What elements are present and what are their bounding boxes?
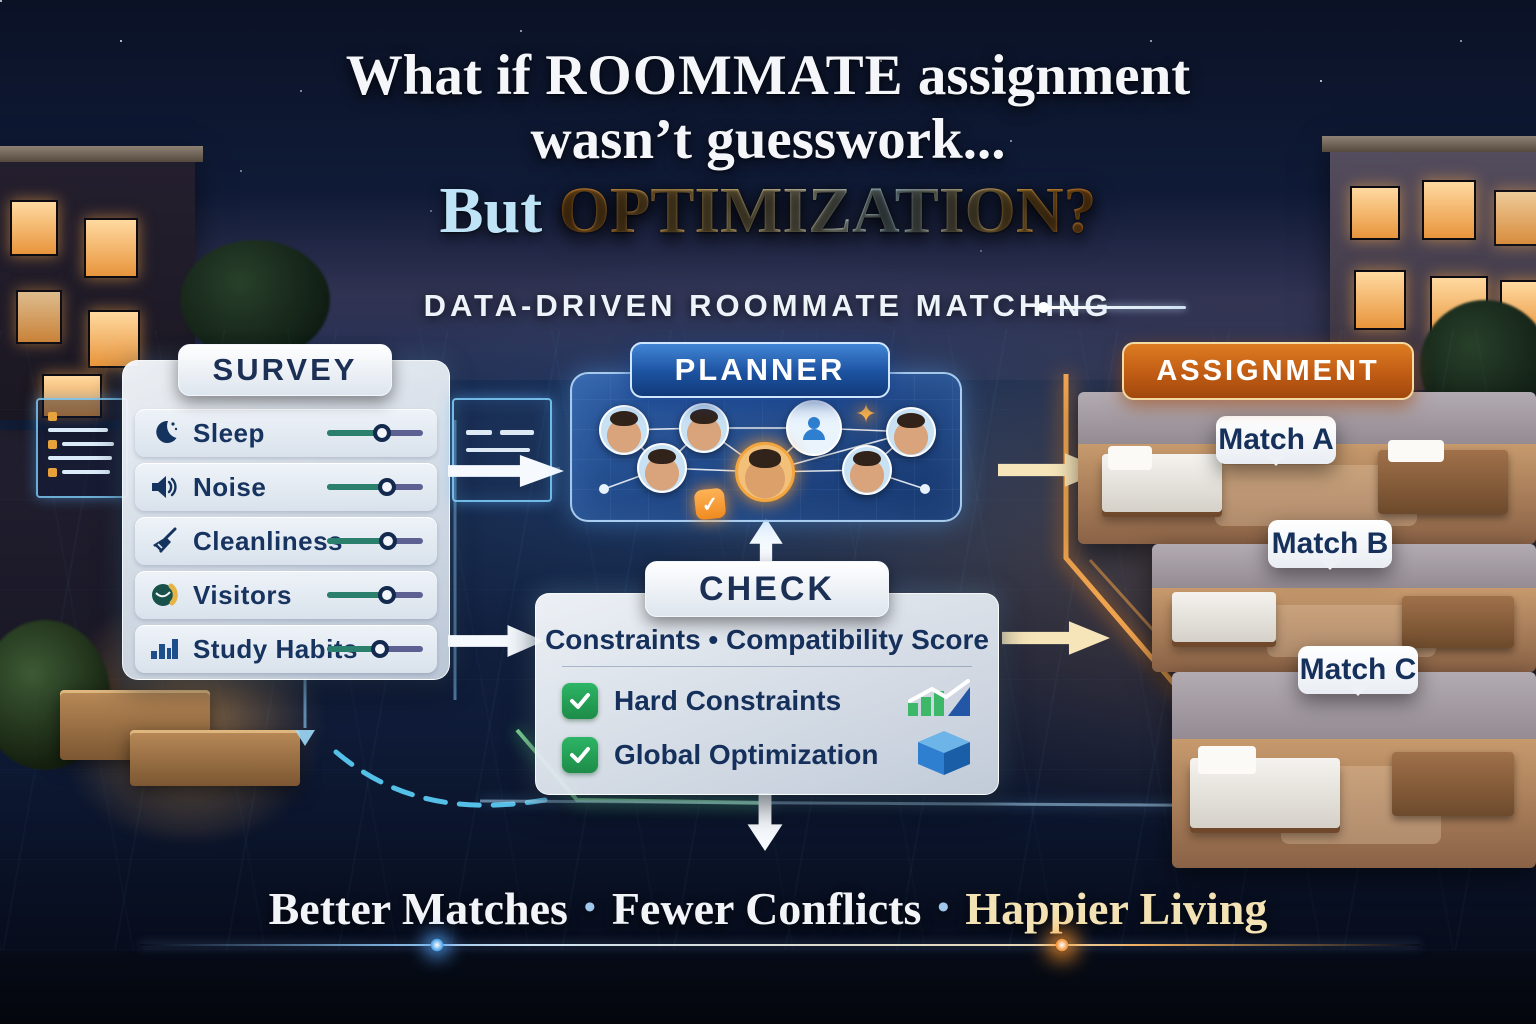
check-subheader: Constraints • Compatibility Score	[536, 624, 998, 656]
survey-item-label: Noise	[193, 472, 266, 503]
subtitle: DATA-DRIVEN ROOMMATE MATCHING	[0, 288, 1536, 324]
moon-icon	[147, 416, 181, 450]
survey-item-label: Visitors	[193, 580, 292, 611]
headline: What if ROOMMATE assignment wasn’t guess…	[0, 44, 1536, 250]
survey-header: SURVEY	[178, 344, 392, 396]
noise-slider[interactable]	[327, 484, 423, 490]
footer-divider-line	[140, 944, 1420, 946]
match-b-label[interactable]: Match B	[1268, 520, 1392, 568]
holo-checklist-panel	[36, 398, 128, 498]
tagline-better-matches: Better Matches	[269, 883, 568, 934]
check-header: CHECK	[645, 561, 889, 617]
slider-knob[interactable]	[371, 640, 389, 658]
tagline-separator: •	[921, 889, 965, 926]
wireframe-card	[452, 398, 552, 502]
broom-icon	[147, 524, 181, 558]
cleanliness-slider[interactable]	[327, 538, 423, 544]
roommate-avatar	[842, 445, 892, 495]
sparkle-icon: ✦	[855, 399, 877, 430]
slider-knob[interactable]	[373, 424, 391, 442]
glow-dot-orange	[1055, 938, 1069, 952]
roommate-avatar	[886, 407, 936, 457]
roommate-avatar	[637, 443, 687, 493]
check-item-label: Hard Constraints	[614, 685, 841, 717]
tagline-fewer-conflicts: Fewer Conflicts	[612, 883, 922, 934]
assignment-header: ASSIGNMENT	[1122, 342, 1414, 400]
survey-row-study-habits: Study Habits	[135, 625, 437, 673]
match-a-label[interactable]: Match A	[1216, 416, 1336, 464]
check-divider	[562, 666, 972, 667]
headline-line2: wasn’t guesswork...	[0, 108, 1536, 172]
star-field	[0, 0, 2, 2]
growth-chart-icon	[906, 679, 972, 724]
cube-icon	[916, 729, 972, 782]
survey-item-label: Sleep	[193, 418, 265, 449]
speaker-icon	[147, 470, 181, 504]
check-row-global-optimization: Global Optimization	[562, 732, 972, 778]
tagline-happier-living: Happier Living	[965, 883, 1267, 934]
check-row-hard-constraints: Hard Constraints	[562, 678, 972, 724]
glow-dot-blue	[430, 938, 444, 952]
study-habits-slider[interactable]	[327, 646, 423, 652]
match-c-label[interactable]: Match C	[1298, 646, 1418, 694]
planner-header: PLANNER	[630, 342, 890, 398]
visitors-icon	[147, 578, 181, 612]
survey-panel: Sleep Noise Clea	[122, 360, 450, 680]
check-panel: Constraints • Compatibility Score Hard C…	[535, 593, 999, 795]
subtitle-line-decoration	[1046, 306, 1186, 309]
person-placeholder-icon	[786, 400, 842, 456]
tagline: Better Matches•Fewer Conflicts•Happier L…	[0, 882, 1536, 935]
survey-row-cleanliness: Cleanliness	[135, 517, 437, 565]
bar-chart-icon	[147, 632, 181, 666]
survey-row-sleep: Sleep	[135, 409, 437, 457]
infographic-canvas: What if ROOMMATE assignment wasn’t guess…	[0, 0, 1536, 1024]
check-badge-icon: ✓	[694, 488, 727, 521]
bottom-ground	[0, 952, 1536, 1024]
checkbox-checked-icon[interactable]	[562, 737, 598, 773]
survey-row-visitors: Visitors	[135, 571, 437, 619]
headline-line1: What if ROOMMATE assignment	[0, 44, 1536, 108]
survey-item-label: Cleanliness	[193, 526, 343, 557]
tagline-separator: •	[568, 889, 612, 926]
visitors-slider[interactable]	[327, 592, 423, 598]
survey-row-noise: Noise	[135, 463, 437, 511]
slider-knob[interactable]	[378, 478, 396, 496]
roommate-avatar	[679, 403, 729, 453]
slider-knob[interactable]	[378, 586, 396, 604]
checkbox-checked-icon[interactable]	[562, 683, 598, 719]
selected-roommate-avatar	[735, 442, 795, 502]
sleep-slider[interactable]	[327, 430, 423, 436]
check-item-label: Global Optimization	[614, 739, 878, 771]
headline-line3: But OPTIMIZATION?	[0, 172, 1536, 250]
roommate-avatar	[599, 405, 649, 455]
survey-rows: Sleep Noise Clea	[135, 409, 437, 673]
furniture-bench	[130, 730, 300, 786]
slider-knob[interactable]	[379, 532, 397, 550]
